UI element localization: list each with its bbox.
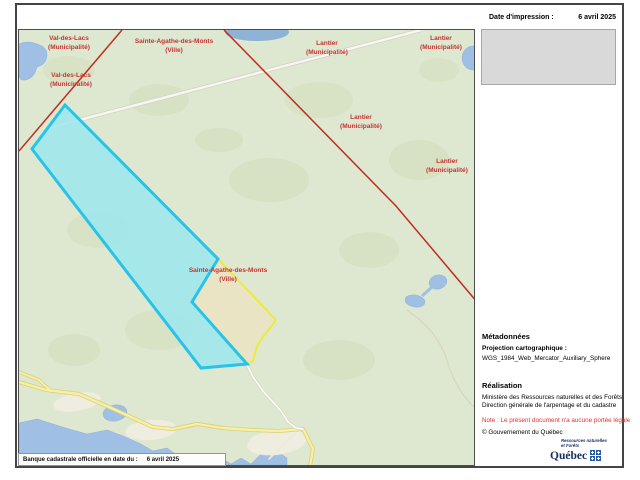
label-lantier-4: Lantier: [436, 158, 458, 165]
label-sainte-agathe-1: Sainte-Agathe-des-Monts: [135, 38, 214, 45]
projection-label: Projection cartographique :: [482, 345, 567, 352]
label-val-des-lacs-2-type: (Municipalité): [50, 81, 92, 88]
print-date-label: Date d'impression :: [489, 14, 554, 21]
print-date-value: 6 avril 2025: [578, 14, 616, 21]
logo-ministry-text: Ressources naturelles et Forêts: [561, 439, 624, 449]
map-area: Val-des-Lacs (Municipalité) Val-des-Lacs…: [18, 29, 475, 466]
legal-note: Note : Le présent document n'a aucune po…: [482, 417, 630, 424]
label-lantier-3: Lantier: [350, 114, 372, 121]
map-canvas: Val-des-Lacs (Municipalité) Val-des-Lacs…: [19, 30, 474, 465]
cadastre-date-bar: Banque cadastrale officielle en date du …: [18, 453, 226, 466]
label-sainte-agathe-2-type: (Ville): [219, 276, 237, 283]
quebec-wordmark: Québec: [550, 450, 587, 462]
label-lantier-3-type: (Municipalité): [340, 123, 382, 130]
realisation-line2: Direction générale de l'arpentage et du …: [482, 402, 616, 409]
label-sainte-agathe-2: Sainte-Agathe-des-Monts: [189, 267, 268, 274]
projection-value: WGS_1984_Web_Mercator_Auxiliary_Sphere: [482, 355, 610, 362]
label-val-des-lacs-1: Val-des-Lacs: [49, 35, 89, 42]
realisation-line1: Ministère des Ressources naturelles et d…: [482, 394, 622, 401]
quebec-flag-icon: [590, 450, 601, 461]
label-lantier-2: Lantier: [430, 35, 452, 42]
label-val-des-lacs-1-type: (Municipalité): [48, 44, 90, 51]
label-val-des-lacs-2: Val-des-Lacs: [51, 72, 91, 79]
label-lantier-1-type: (Municipalité): [306, 49, 348, 56]
label-lantier-1: Lantier: [316, 40, 338, 47]
quebec-logo: Ressources naturelles et Forêts Québec: [550, 439, 624, 462]
legend-box: [481, 29, 616, 85]
cadastre-date-label: Banque cadastrale officielle en date du …: [23, 457, 138, 463]
cadastre-date-value: 6 avril 2025: [147, 457, 179, 463]
copyright-text: © Gouvernement du Québec: [482, 429, 563, 436]
realisation-title: Réalisation: [482, 381, 522, 390]
cadastral-map-document: { "header": { "date_label": "Date d'impr…: [0, 0, 640, 480]
label-lantier-2-type: (Municipalité): [420, 44, 462, 51]
metadata-title: Métadonnées: [482, 332, 530, 341]
print-date-row: Date d'impression : 6 avril 2025: [489, 14, 616, 21]
label-sainte-agathe-1-type: (Ville): [165, 47, 183, 54]
label-lantier-4-type: (Municipalité): [426, 167, 468, 174]
